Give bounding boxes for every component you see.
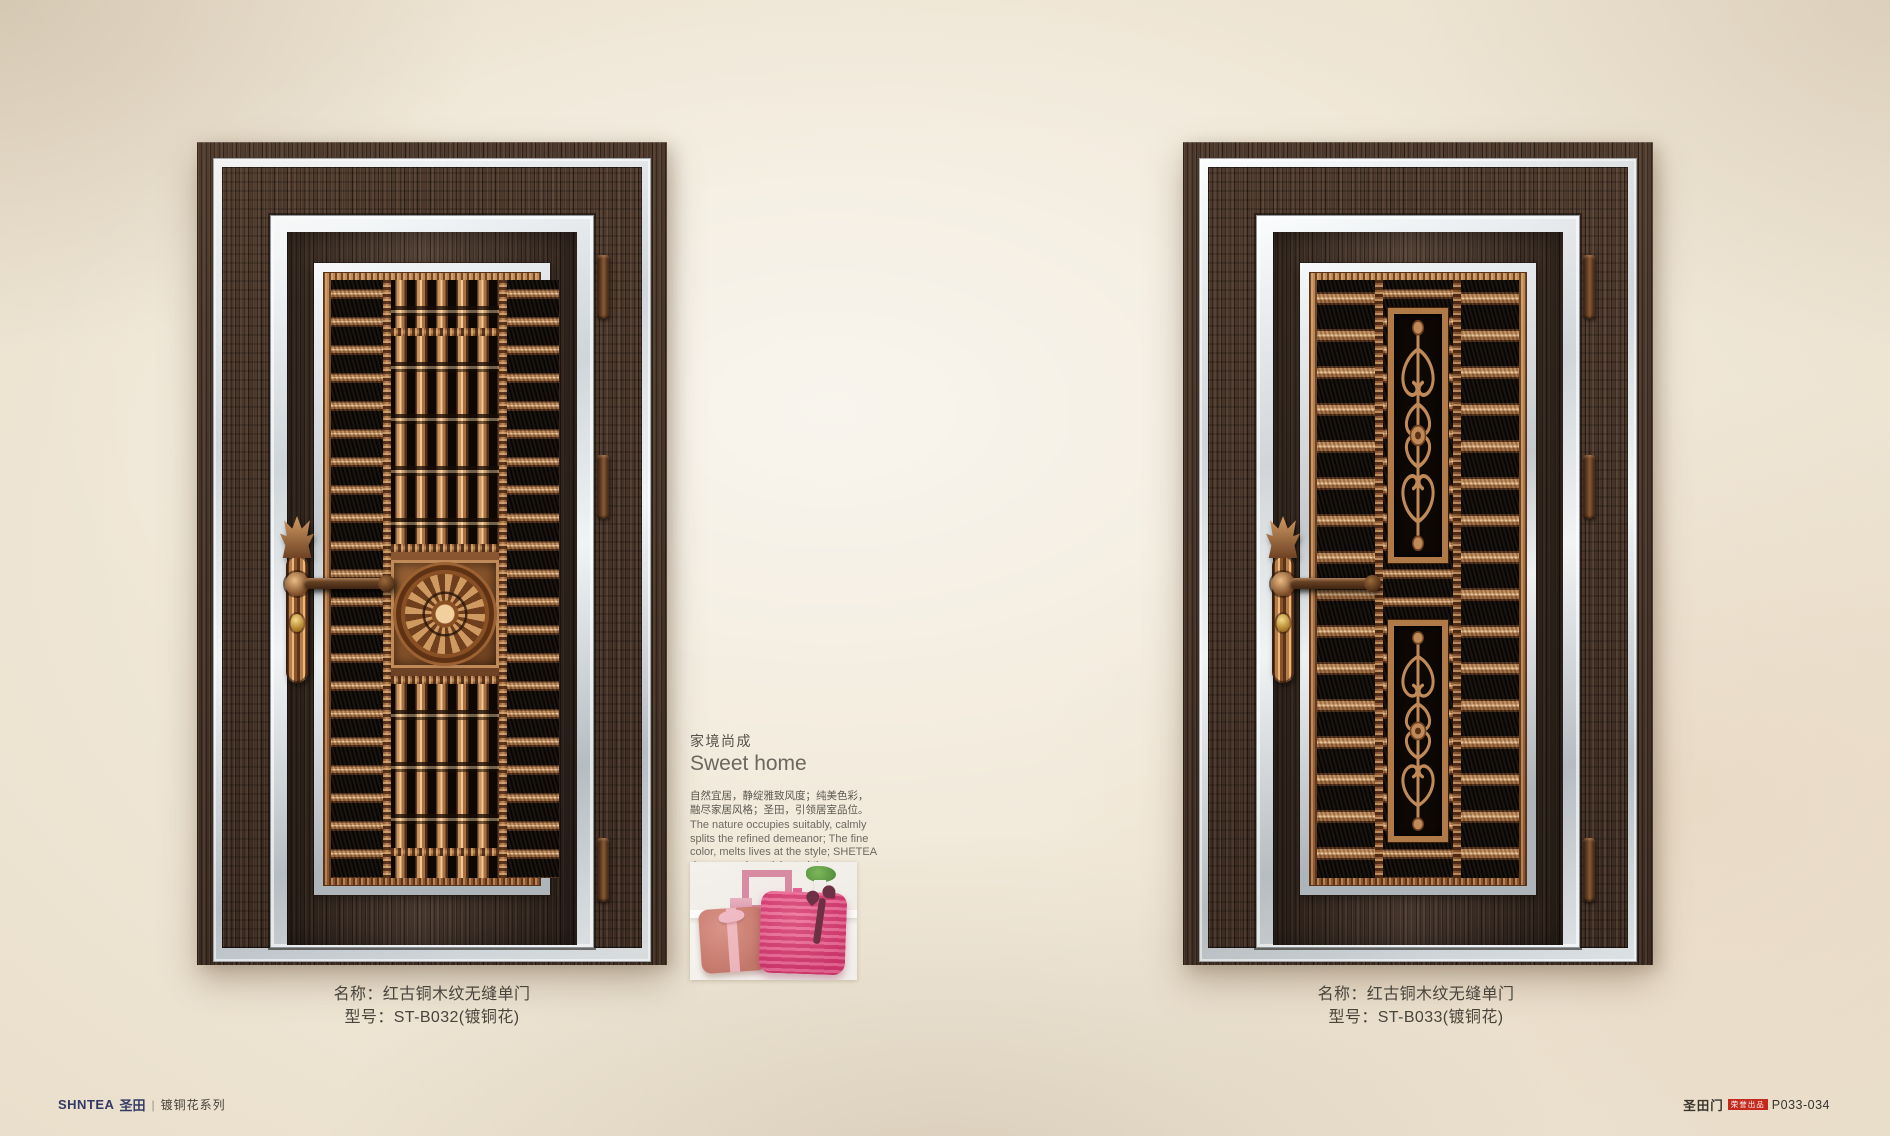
door-name-label: 名称：红古铜木纹无缝单门 xyxy=(282,983,582,1006)
baluster-section-top xyxy=(391,280,499,328)
baluster-column xyxy=(391,280,499,878)
handle-keyhole xyxy=(291,614,304,632)
honor-badge: 荣誉出品 xyxy=(1728,1099,1768,1110)
product-label-right: 名称：红古铜木纹无缝单门 型号：ST-B033(镀铜花) xyxy=(1266,983,1566,1029)
product-label-left: 名称：红古铜木纹无缝单门 型号：ST-B032(镀铜花) xyxy=(282,983,582,1029)
rosette-medallion xyxy=(401,570,489,658)
catalog-page: 名称：红古铜木纹无缝单门 型号：ST-B032(镀铜花) 名称：红古铜木纹无缝单… xyxy=(0,0,1890,1136)
intro-desc-cn-line2: 融尽家居风格；圣田，引领居室品位。 xyxy=(690,804,869,816)
photo-pillow-salmon xyxy=(698,906,768,974)
hinge-middle xyxy=(597,455,609,519)
door-handle xyxy=(1262,516,1304,683)
scroll-ornament-top xyxy=(1388,308,1448,563)
hinge-bottom xyxy=(597,838,609,902)
handle-lever xyxy=(1290,578,1378,589)
door-name-label: 名称：红古铜木纹无缝单门 xyxy=(1266,983,1566,1006)
hinge-top xyxy=(597,255,609,319)
door-product-st-b033 xyxy=(1183,142,1653,965)
brand-logo-text: SHNTEA xyxy=(58,1097,114,1112)
medallion-plate xyxy=(391,560,499,668)
meander-strip xyxy=(391,848,499,856)
intro-desc-cn-line1: 自然宜居，静绽雅致风度；纯美色彩， xyxy=(690,790,869,802)
footer-page-info: 圣田门 荣誉出品 P033-034 xyxy=(1683,1095,1830,1114)
door-leaf xyxy=(287,232,577,945)
baluster-section-upper xyxy=(391,336,499,544)
door-product-st-b032 xyxy=(197,142,667,965)
intro-desc-cn: 自然宜居，静绽雅致风度；纯美色彩， 融尽家居风格；圣田，引领居室品位。 xyxy=(690,789,892,817)
handle-crown-ornament xyxy=(280,516,314,558)
footer-brand: SHNTEA 圣田 | 镀铜花系列 xyxy=(58,1095,226,1114)
hinge-bottom xyxy=(1583,838,1595,902)
photo-pillow-pink xyxy=(759,891,848,976)
meander-strip xyxy=(391,676,499,684)
publisher-name: 圣田门 xyxy=(1683,1095,1724,1114)
rod-column-right xyxy=(507,280,559,878)
series-name: 镀铜花系列 xyxy=(161,1096,226,1113)
brand-logo-cn: 圣田 xyxy=(119,1095,145,1114)
intro-title-cn: 家境尚成 xyxy=(690,731,892,751)
footer-divider: | xyxy=(150,1098,155,1112)
medallion-panel xyxy=(391,552,499,676)
hinge-middle xyxy=(1583,455,1595,519)
door-model-label: 型号：ST-B032(镀铜花) xyxy=(282,1006,582,1029)
door-handle xyxy=(276,516,318,683)
lifestyle-photo xyxy=(690,862,857,980)
hinge-top xyxy=(1583,255,1595,319)
scroll-ornament-bottom xyxy=(1388,620,1448,842)
ornament-column xyxy=(1375,280,1461,878)
intro-title-en: Sweet home xyxy=(690,752,892,776)
baluster-section-bottom xyxy=(391,856,499,878)
handle-crown-ornament xyxy=(1266,516,1300,558)
door-model-label: 型号：ST-B033(镀铜花) xyxy=(1266,1006,1566,1029)
meander-strip xyxy=(391,328,499,336)
handle-keyhole xyxy=(1277,614,1290,632)
meander-strip xyxy=(391,544,499,552)
baluster-section-lower xyxy=(391,684,499,848)
door-leaf xyxy=(1273,232,1563,945)
handle-lever xyxy=(304,578,392,589)
meander-strip xyxy=(499,280,507,878)
page-number: P033-034 xyxy=(1772,1098,1830,1112)
